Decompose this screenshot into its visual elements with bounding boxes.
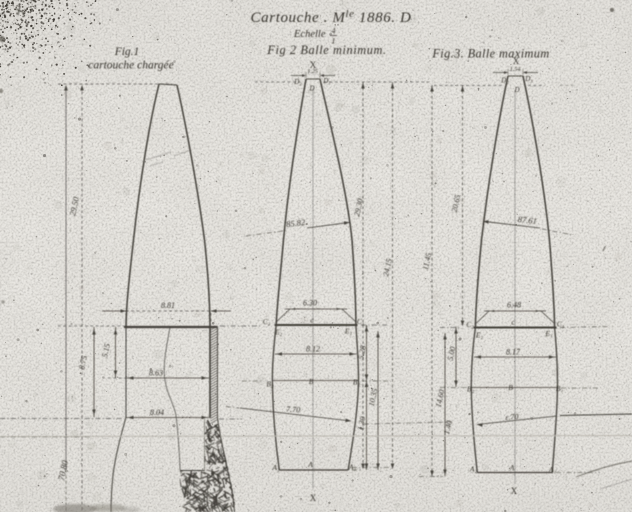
svg-text:A₂: A₂ [469, 465, 478, 474]
svg-text:B₁: B₁ [353, 378, 361, 387]
svg-text:A₂: A₂ [271, 463, 280, 472]
svg-text:6.48: 6.48 [507, 301, 521, 310]
svg-text:A: A [307, 460, 313, 469]
svg-text:D₁: D₁ [524, 75, 533, 83]
svg-text:A₁: A₁ [348, 463, 357, 472]
svg-text:B₂: B₂ [467, 385, 475, 394]
svg-text:Fig 2 Balle minimum.: Fig 2 Balle minimum. [266, 43, 386, 57]
svg-text:E₁: E₁ [544, 329, 553, 338]
svg-text:D: D [513, 86, 519, 94]
svg-text:8.17: 8.17 [506, 348, 521, 357]
svg-text:8.12: 8.12 [306, 345, 320, 354]
svg-text:Cartouche . Mle 1886. D: Cartouche . Mle 1886. D [251, 8, 412, 26]
svg-text:ε.70: ε.70 [505, 412, 519, 422]
svg-text:1.54: 1.54 [510, 66, 521, 73]
svg-text:B: B [309, 377, 314, 386]
svg-text:D: D [308, 85, 314, 93]
svg-text:cartouche chargée: cartouche chargée [88, 60, 173, 72]
svg-text:C₁: C₁ [357, 317, 365, 326]
svg-text:B: B [508, 383, 513, 392]
svg-text:X: X [511, 486, 518, 496]
svg-text:8.63: 8.63 [149, 369, 163, 378]
svg-text:6.30: 6.30 [303, 299, 317, 308]
svg-text:A₁: A₁ [548, 465, 557, 474]
svg-text:7.70: 7.70 [286, 405, 301, 415]
svg-text:Fig.1: Fig.1 [114, 46, 140, 58]
svg-text:D₂: D₂ [293, 78, 302, 86]
svg-text:Echelle: Echelle [293, 29, 326, 40]
svg-text:C₂: C₂ [466, 320, 474, 329]
svg-text:E₂: E₂ [274, 328, 283, 337]
svg-text:1.25: 1.25 [307, 69, 318, 75]
svg-text:C₂: C₂ [263, 317, 271, 326]
svg-text:B₁: B₁ [556, 384, 564, 393]
svg-text:8.04: 8.04 [150, 408, 164, 417]
svg-text:8.81: 8.81 [161, 301, 175, 310]
svg-text:D₂: D₂ [500, 77, 509, 85]
svg-text:A: A [509, 463, 515, 472]
svg-text:B₂: B₂ [266, 380, 274, 389]
svg-text:C₁: C₁ [557, 320, 565, 329]
svg-text:E₁: E₁ [344, 327, 353, 336]
svg-text:4: 4 [332, 27, 336, 36]
svg-text:E₂: E₂ [475, 331, 484, 340]
svg-text:Fig.3. Balle maximum: Fig.3. Balle maximum [431, 47, 549, 61]
svg-text:D₁: D₁ [322, 77, 331, 85]
svg-text:X: X [310, 493, 317, 503]
